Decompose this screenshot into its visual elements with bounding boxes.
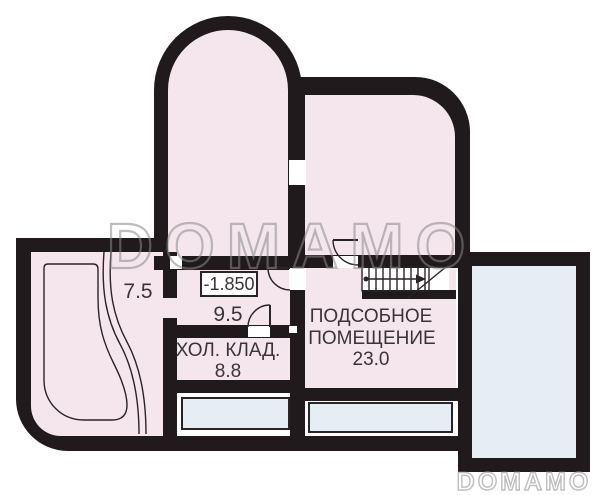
utility-room-area: 23.0 xyxy=(353,349,390,370)
utility-room-label-line2: ПОМЕЩЕНИЕ xyxy=(308,328,435,349)
watermark-corner: DOMAMO xyxy=(457,468,592,495)
bottom-wall xyxy=(68,436,463,451)
left-light-well xyxy=(182,398,289,429)
hall-area: 9.5 xyxy=(213,303,242,326)
right-light-well xyxy=(309,403,452,432)
cold-storage-door-gap xyxy=(248,326,270,337)
utility-room-label-line1: ПОДСОБНОЕ xyxy=(310,306,433,327)
middle-wall-window-gap xyxy=(289,160,306,185)
cold-storage-area: 8.8 xyxy=(215,361,241,382)
right-annex-floor xyxy=(472,266,576,458)
cold-storage-top-wall xyxy=(163,325,292,338)
cold-storage-label: ХОЛ. КЛАД. xyxy=(176,340,281,361)
utility-bottom-wall xyxy=(292,388,458,401)
wall-notch xyxy=(289,326,297,333)
floor-plan-canvas: 7.5 -1.850 9.5 ХОЛ. КЛАД. 8.8 ПОДСОБНОЕ … xyxy=(0,0,607,495)
watermark-center: DOMAMO xyxy=(107,210,478,282)
room-7-5-area: 7.5 xyxy=(123,280,152,303)
